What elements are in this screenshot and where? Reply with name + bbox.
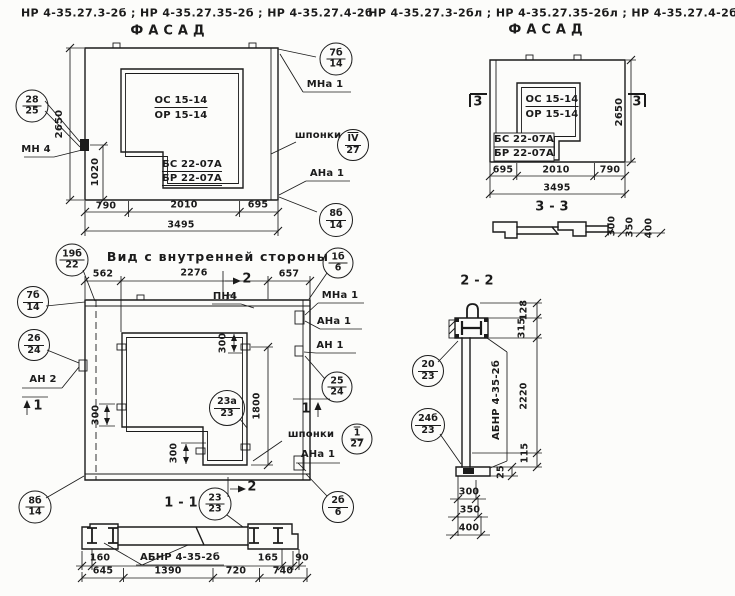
section-marker-3-right: 3 bbox=[632, 96, 641, 109]
balloon-20-23: 20 23 bbox=[412, 355, 444, 387]
label-ana1-top: АНа 1 bbox=[317, 317, 351, 327]
label-an1: АН 1 bbox=[316, 341, 343, 351]
dim-350-s33: 350 bbox=[625, 217, 635, 237]
dim-562: 562 bbox=[93, 269, 113, 279]
label-mna1-right: МНа 1 bbox=[322, 291, 359, 301]
dim-350-s22: 350 bbox=[460, 505, 480, 515]
dim-1020: 1020 bbox=[91, 158, 101, 187]
balloon-28-25: 28 25 bbox=[16, 90, 49, 123]
balloon-8b-14-inner: 8б 14 bbox=[19, 491, 52, 524]
balloon-7b-14-inner: 7б 14 bbox=[17, 286, 49, 318]
balloon-1-27: 1 27 bbox=[342, 424, 373, 455]
block-mark-bs: БС 22-07А bbox=[162, 160, 222, 172]
dim-115: 115 bbox=[520, 443, 530, 463]
label-ana1-bottom: АНа 1 bbox=[301, 450, 335, 460]
dim-720: 720 bbox=[226, 566, 246, 576]
dim-2650-right: 2650 bbox=[615, 98, 625, 127]
section-marker-1-left: 1 bbox=[33, 400, 42, 413]
dim-300-bottom: 300 bbox=[169, 443, 179, 463]
dim-300-s22: 300 bbox=[459, 487, 479, 497]
dim-695-right: 695 bbox=[493, 165, 513, 175]
opening-mark-or: ОР 15-14 bbox=[155, 111, 208, 121]
dim-790-right: 790 bbox=[600, 165, 620, 175]
opening-mark-os: ОС 15-14 bbox=[155, 96, 208, 108]
dim-790: 790 bbox=[96, 201, 116, 211]
dim-300-top: 300 bbox=[218, 333, 228, 353]
header-codes-right: НР 4-35.27.3-2бл ; НР 4-35.27.35-2бл ; Н… bbox=[368, 8, 735, 19]
section-2-2-title: 2 - 2 bbox=[460, 275, 494, 288]
section-marker-3-left: 3 bbox=[473, 96, 482, 109]
section-marker-2-bottom: 2 bbox=[247, 481, 256, 494]
label-an2: АН 2 bbox=[29, 375, 56, 385]
dim-300-s33: 300 bbox=[607, 216, 617, 236]
dim-657: 657 bbox=[279, 269, 299, 279]
label-abnr: АБНР 4-35-2б bbox=[140, 553, 220, 563]
dim-400-s22: 400 bbox=[459, 523, 479, 533]
opening-mark-os-right: ОС 15-14 bbox=[526, 95, 579, 107]
balloon-25-24: 25 24 bbox=[322, 372, 353, 403]
dim-400-s33: 400 bbox=[644, 218, 654, 238]
balloon-8b-14: 8б 14 bbox=[319, 203, 353, 237]
section-marker-2-top: 2 bbox=[242, 273, 251, 286]
balloon-23a-23: 23а 23 bbox=[209, 390, 245, 426]
section-marker-1-right: 1 bbox=[301, 403, 310, 416]
balloon-1b-6: 1б 6 bbox=[323, 248, 354, 279]
label-ana1: АНа 1 bbox=[310, 169, 344, 179]
label-mna1: МНа 1 bbox=[307, 80, 344, 90]
inner-view-title: Вид с внутренней стороны bbox=[107, 251, 329, 264]
title-fasad-right: ФАСАД bbox=[508, 24, 587, 37]
balloon-23-23: 23 23 bbox=[199, 488, 232, 521]
opening-mark-or-right: ОР 15-14 bbox=[526, 110, 579, 120]
dim-2220: 2220 bbox=[519, 382, 529, 409]
label-abnr-vertical: АБНР 4-35-2б bbox=[492, 360, 502, 440]
dim-2010: 2010 bbox=[170, 200, 197, 210]
drawing-linework bbox=[0, 0, 735, 596]
balloon-19b-22: 19б 22 bbox=[56, 244, 89, 277]
dim-315: 315 bbox=[517, 318, 527, 338]
dim-165: 165 bbox=[258, 553, 278, 563]
balloon-7b-14: 7б 14 bbox=[320, 43, 353, 76]
dim-300-left: 300 bbox=[91, 405, 101, 425]
dim-1800: 1800 bbox=[252, 392, 262, 419]
dim-1390: 1390 bbox=[154, 566, 181, 576]
block-mark-bs-right: БС 22-07А bbox=[494, 135, 554, 145]
drawing-sheet: НР 4-35.27.3-2б ; НР 4-35.27.35-2б ; НР … bbox=[0, 0, 735, 596]
label-shponki: шпонки bbox=[295, 131, 341, 141]
dim-3495: 3495 bbox=[167, 220, 194, 230]
dim-2276: 2276 bbox=[180, 268, 207, 278]
title-fasad-left: ФАСАД bbox=[130, 25, 209, 38]
label-pn4: ПН4 bbox=[213, 292, 237, 302]
label-shponki-inner: шпонки bbox=[288, 430, 334, 440]
balloon-2b-6: 2б 6 bbox=[322, 491, 354, 523]
balloon-iv-27: IV 27 bbox=[337, 129, 369, 161]
dim-740: 740 bbox=[273, 566, 293, 576]
dim-90: 90 bbox=[295, 553, 309, 563]
dim-645: 645 bbox=[93, 566, 113, 576]
block-mark-br: БР 22-07А bbox=[162, 174, 222, 186]
section-3-3-title: 3 - 3 bbox=[535, 201, 569, 214]
balloon-24b-23: 24б 23 bbox=[411, 408, 445, 442]
dim-160: 160 bbox=[90, 553, 110, 563]
dim-2010-right: 2010 bbox=[542, 165, 569, 175]
section-1-1-title: 1 - 1 bbox=[164, 497, 198, 510]
header-codes-left: НР 4-35.27.3-2б ; НР 4-35.27.35-2б ; НР … bbox=[21, 8, 373, 19]
dim-3495-right: 3495 bbox=[543, 183, 570, 193]
balloon-26-24: 26 24 bbox=[18, 329, 50, 361]
label-mn4: МН 4 bbox=[21, 145, 51, 155]
dim-2650: 2650 bbox=[55, 110, 65, 139]
dim-25: 25 bbox=[496, 465, 506, 479]
block-mark-br-right: БР 22-07А bbox=[494, 149, 554, 159]
dim-695: 695 bbox=[248, 200, 268, 210]
